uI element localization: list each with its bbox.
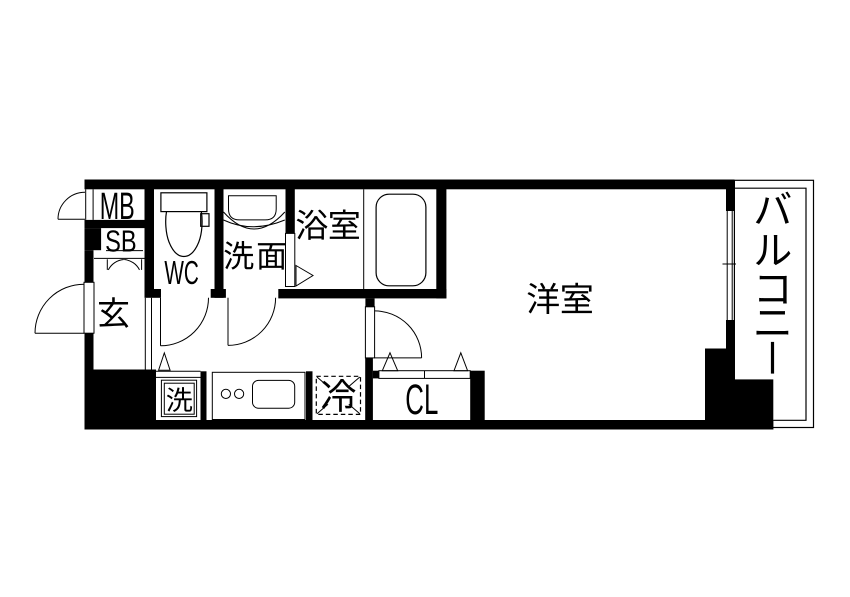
svg-text:CL: CL (405, 376, 438, 424)
svg-text:SB: SB (105, 223, 137, 258)
svg-text:WC: WC (164, 254, 199, 291)
svg-text:MB: MB (100, 186, 135, 228)
